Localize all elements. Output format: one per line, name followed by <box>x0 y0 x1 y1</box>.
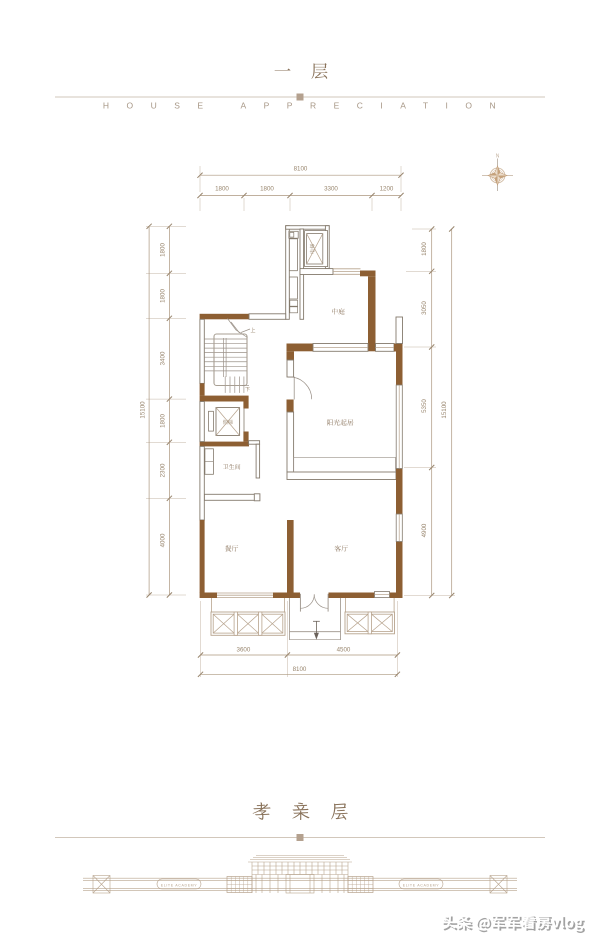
svg-text:N: N <box>496 154 500 160</box>
svg-text:ELITE ACADEMY: ELITE ACADEMY <box>403 883 440 887</box>
svg-text:8100: 8100 <box>293 666 307 673</box>
svg-text:1800: 1800 <box>421 242 428 256</box>
svg-text:1800: 1800 <box>159 243 166 257</box>
svg-text:15100: 15100 <box>140 401 147 419</box>
svg-text:3600: 3600 <box>237 647 251 654</box>
svg-text:上: 上 <box>250 327 255 334</box>
svg-text:1800: 1800 <box>159 289 166 303</box>
svg-text:1200: 1200 <box>380 186 394 193</box>
svg-text:ELITE ACADEMY: ELITE ACADEMY <box>161 883 198 887</box>
svg-text:下: 下 <box>245 387 250 393</box>
svg-text:4000: 4000 <box>159 533 166 547</box>
svg-text:3300: 3300 <box>324 186 338 193</box>
svg-text:1800: 1800 <box>215 186 229 193</box>
svg-text:5350: 5350 <box>421 399 428 413</box>
svg-text:1800: 1800 <box>260 186 274 193</box>
svg-text:1800: 1800 <box>159 414 166 428</box>
svg-text:HOUSE APPRECIATION: HOUSE APPRECIATION <box>103 101 513 111</box>
svg-text:2300: 2300 <box>159 463 166 477</box>
svg-text:15100: 15100 <box>441 401 448 419</box>
svg-text:8100: 8100 <box>294 166 308 173</box>
svg-text:4500: 4500 <box>337 647 351 654</box>
svg-text:3400: 3400 <box>159 351 166 365</box>
svg-text:4900: 4900 <box>421 523 428 537</box>
svg-text:3050: 3050 <box>421 301 428 315</box>
